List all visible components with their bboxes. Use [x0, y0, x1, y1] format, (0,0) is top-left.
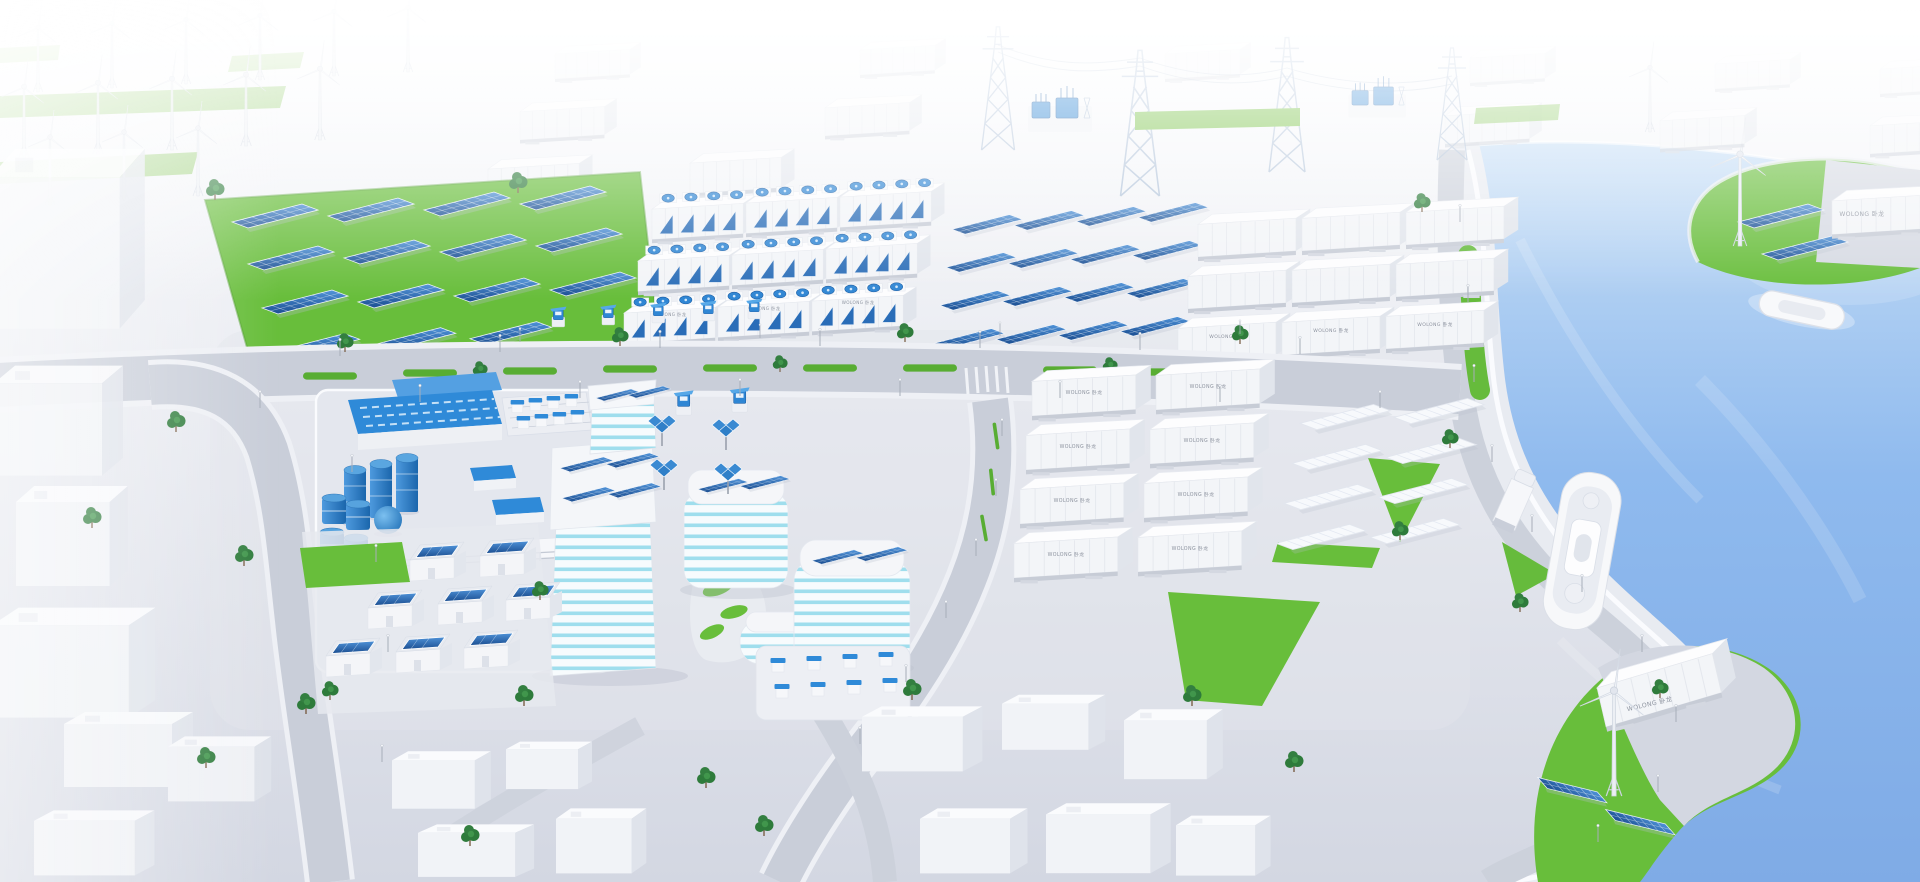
campus-building-west: [680, 470, 796, 599]
render-stage: WOLONG 卧龙 WOLONG 卧龙: [0, 0, 1920, 882]
city-energy-render: WOLONG 卧龙 WOLONG 卧龙: [0, 0, 1920, 882]
barrel-tank: [322, 494, 346, 524]
lawn: [300, 542, 410, 588]
container-label: WOLONG 卧龙: [1184, 437, 1221, 444]
container-label: WOLONG 卧龙: [1054, 497, 1091, 504]
container-label: WOLONG 卧龙: [1178, 491, 1215, 498]
fog-top: [0, 0, 1920, 300]
fog-left: [0, 0, 280, 882]
container-label: WOLONG 卧龙: [1417, 321, 1452, 328]
storage-tank: [395, 454, 419, 516]
container-label: WOLONG 卧龙: [1060, 443, 1097, 450]
container-label: WOLONG 卧龙: [842, 299, 875, 306]
container-label: WOLONG 卧龙: [1313, 327, 1348, 334]
barrel-tank: [346, 500, 370, 530]
container-label: WOLONG 卧龙: [1048, 551, 1085, 558]
container-label: WOLONG 卧龙: [1172, 545, 1209, 552]
container-label: WOLONG 卧龙: [1066, 389, 1103, 396]
